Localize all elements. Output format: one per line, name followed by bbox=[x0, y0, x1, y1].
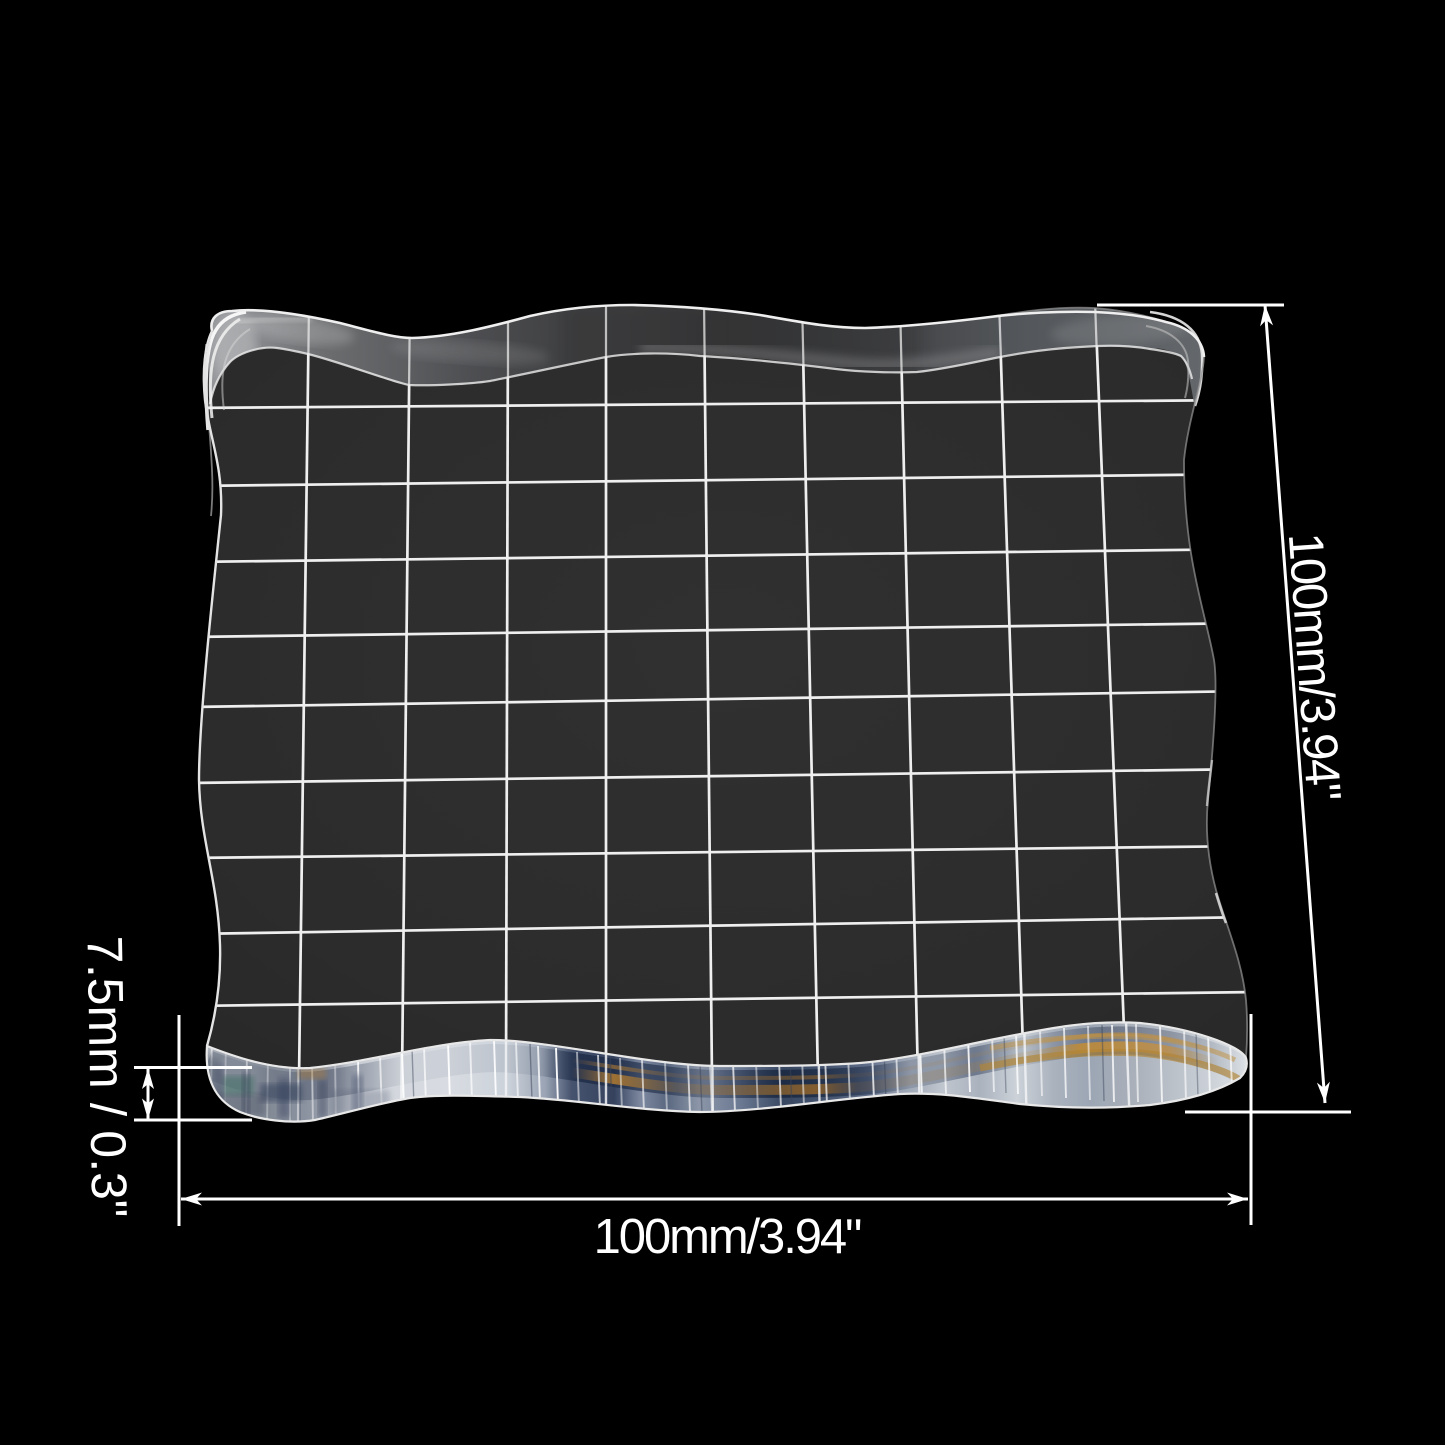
svg-text:7.5mm / 0.3": 7.5mm / 0.3" bbox=[77, 935, 138, 1218]
svg-text:100mm/3.94": 100mm/3.94" bbox=[594, 1210, 861, 1264]
